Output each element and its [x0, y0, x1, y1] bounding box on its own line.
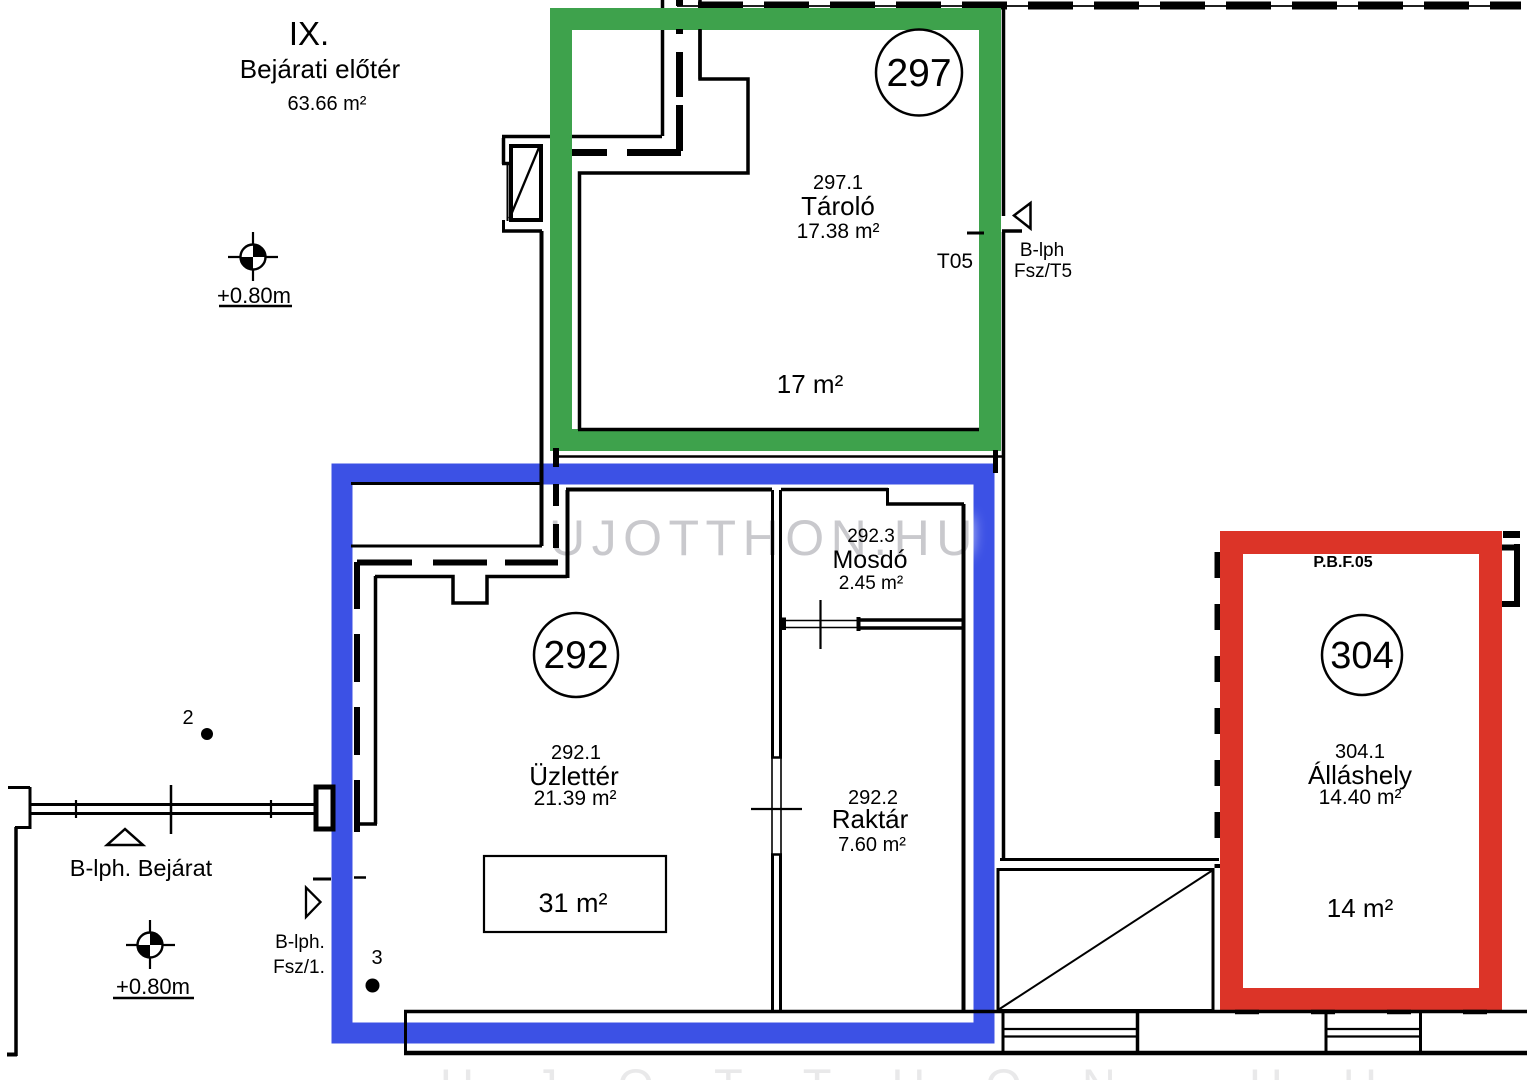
- svg-text:14 m²: 14 m²: [1327, 893, 1394, 923]
- svg-text:2: 2: [182, 707, 193, 729]
- svg-text:292: 292: [543, 634, 608, 677]
- svg-text:31 m²: 31 m²: [538, 888, 607, 918]
- svg-text:2.45 m²: 2.45 m²: [839, 573, 903, 594]
- svg-text:21.39 m²: 21.39 m²: [534, 787, 617, 810]
- svg-text:B-lph.: B-lph.: [275, 932, 325, 953]
- svg-text:Mosdó: Mosdó: [832, 546, 907, 574]
- svg-text:14.40 m²: 14.40 m²: [1319, 786, 1402, 809]
- svg-text:UJOTTHON.HU: UJOTTHON.HU: [549, 510, 979, 566]
- svg-text:Fsz/T5: Fsz/T5: [1014, 261, 1072, 282]
- svg-text:Raktár: Raktár: [832, 804, 909, 834]
- svg-text:7.60 m²: 7.60 m²: [838, 834, 906, 856]
- svg-text:B-lph: B-lph: [1020, 240, 1064, 261]
- svg-text:292.3: 292.3: [847, 526, 895, 547]
- svg-text:P.B.F.05: P.B.F.05: [1313, 554, 1372, 571]
- svg-text:3: 3: [371, 947, 382, 969]
- svg-text:17 m²: 17 m²: [777, 369, 844, 399]
- svg-text:297: 297: [886, 52, 951, 95]
- svg-text:Tároló: Tároló: [801, 191, 875, 221]
- svg-text:Bejárati előtér: Bejárati előtér: [240, 54, 401, 84]
- svg-text:+0.80m: +0.80m: [217, 283, 291, 308]
- svg-text:Fsz/1.: Fsz/1.: [273, 957, 325, 978]
- svg-text:IX.: IX.: [289, 15, 329, 52]
- svg-text:B-lph. Bejárat: B-lph. Bejárat: [70, 855, 213, 881]
- svg-text:17.38 m²: 17.38 m²: [797, 220, 880, 243]
- svg-text:+0.80m: +0.80m: [116, 974, 190, 999]
- svg-text:304: 304: [1330, 635, 1393, 677]
- svg-text:UJOTTHON.HU: UJOTTHON.HU: [440, 1059, 1437, 1080]
- svg-text:63.66 m²: 63.66 m²: [288, 93, 367, 115]
- svg-text:T05: T05: [937, 250, 973, 273]
